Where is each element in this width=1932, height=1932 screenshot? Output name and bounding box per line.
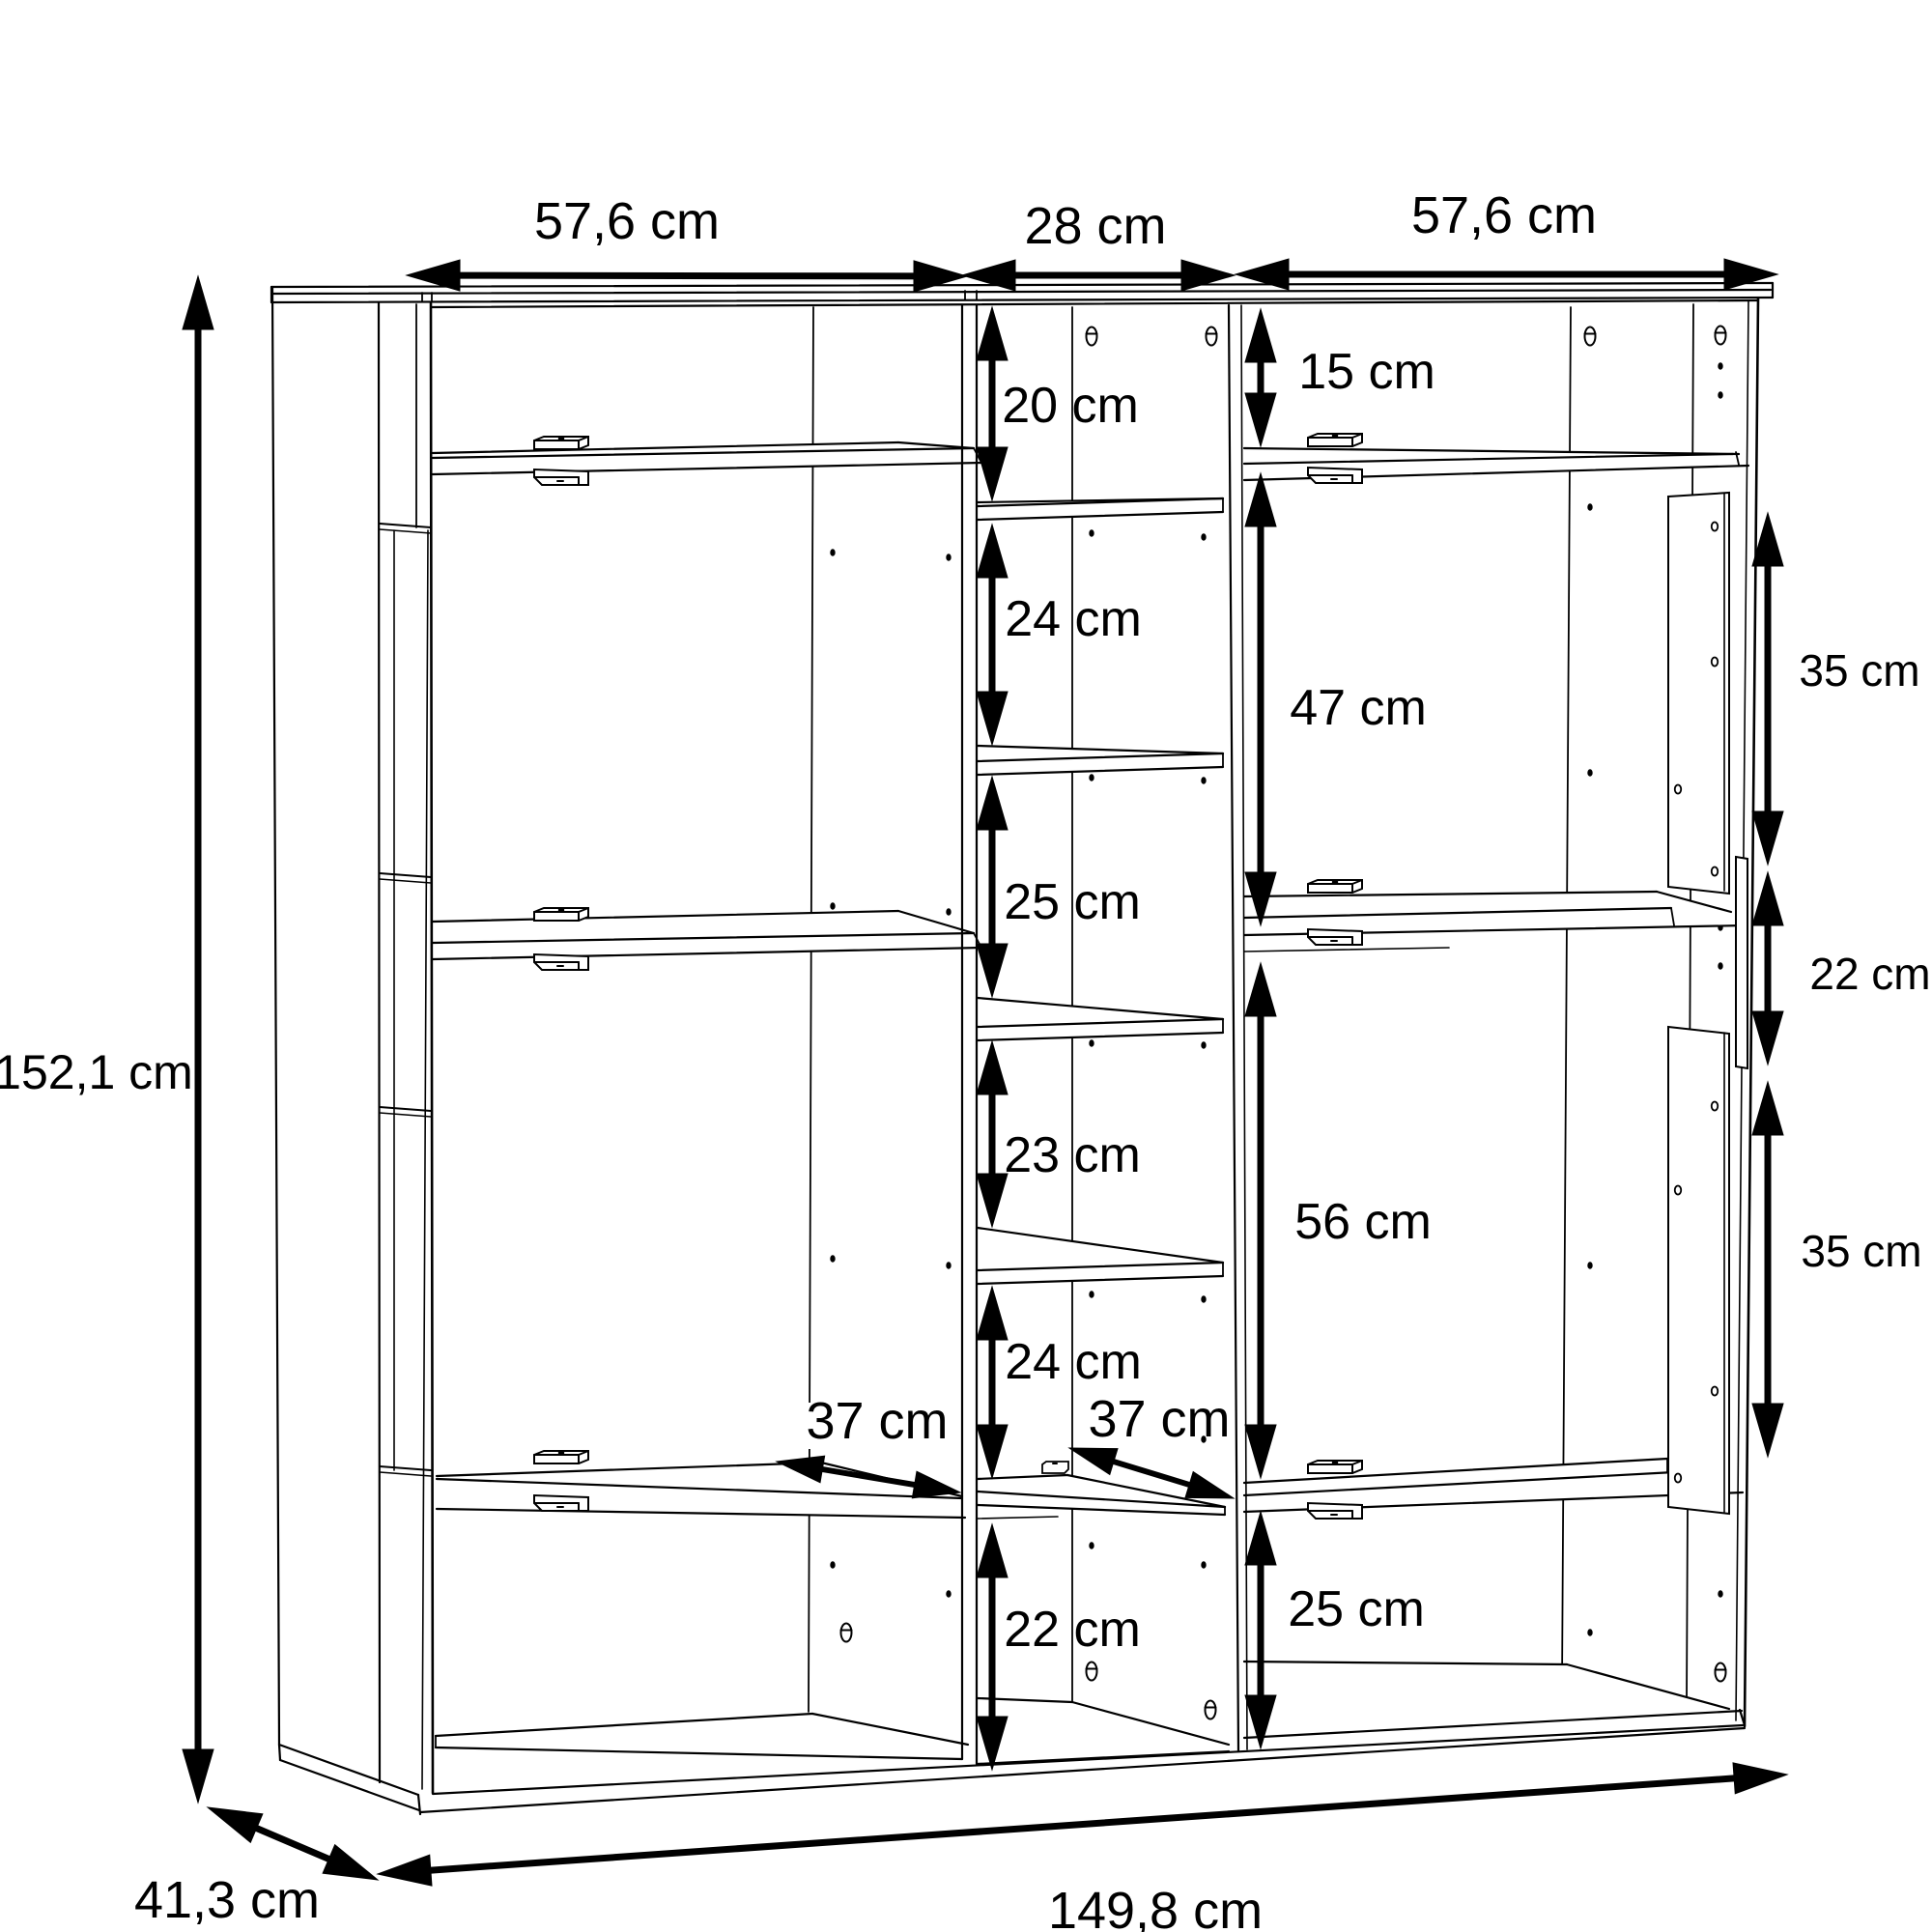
svg-text:24 cm: 24 cm	[1005, 591, 1142, 647]
svg-text:35 cm: 35 cm	[1799, 645, 1919, 696]
svg-text:25 cm: 25 cm	[1004, 874, 1141, 930]
svg-text:56 cm: 56 cm	[1294, 1194, 1432, 1250]
svg-text:22 cm: 22 cm	[1004, 1602, 1141, 1658]
svg-text:25 cm: 25 cm	[1288, 1581, 1425, 1637]
svg-text:22 cm: 22 cm	[1809, 949, 1930, 999]
svg-text:57,6 cm: 57,6 cm	[534, 192, 720, 250]
svg-text:149,8 cm: 149,8 cm	[1048, 1882, 1263, 1932]
svg-text:37 cm: 37 cm	[806, 1392, 948, 1450]
svg-text:15 cm: 15 cm	[1298, 344, 1435, 400]
svg-text:41,3 cm: 41,3 cm	[134, 1871, 320, 1929]
svg-text:20 cm: 20 cm	[1002, 378, 1139, 434]
svg-text:23 cm: 23 cm	[1004, 1127, 1141, 1183]
svg-text:152,1 cm: 152,1 cm	[0, 1045, 193, 1099]
svg-text:24 cm: 24 cm	[1005, 1334, 1142, 1390]
svg-text:57,6 cm: 57,6 cm	[1411, 186, 1597, 244]
svg-text:37 cm: 37 cm	[1088, 1390, 1230, 1448]
svg-text:35 cm: 35 cm	[1801, 1226, 1921, 1276]
svg-text:28 cm: 28 cm	[1024, 197, 1166, 255]
svg-text:47 cm: 47 cm	[1290, 680, 1427, 736]
